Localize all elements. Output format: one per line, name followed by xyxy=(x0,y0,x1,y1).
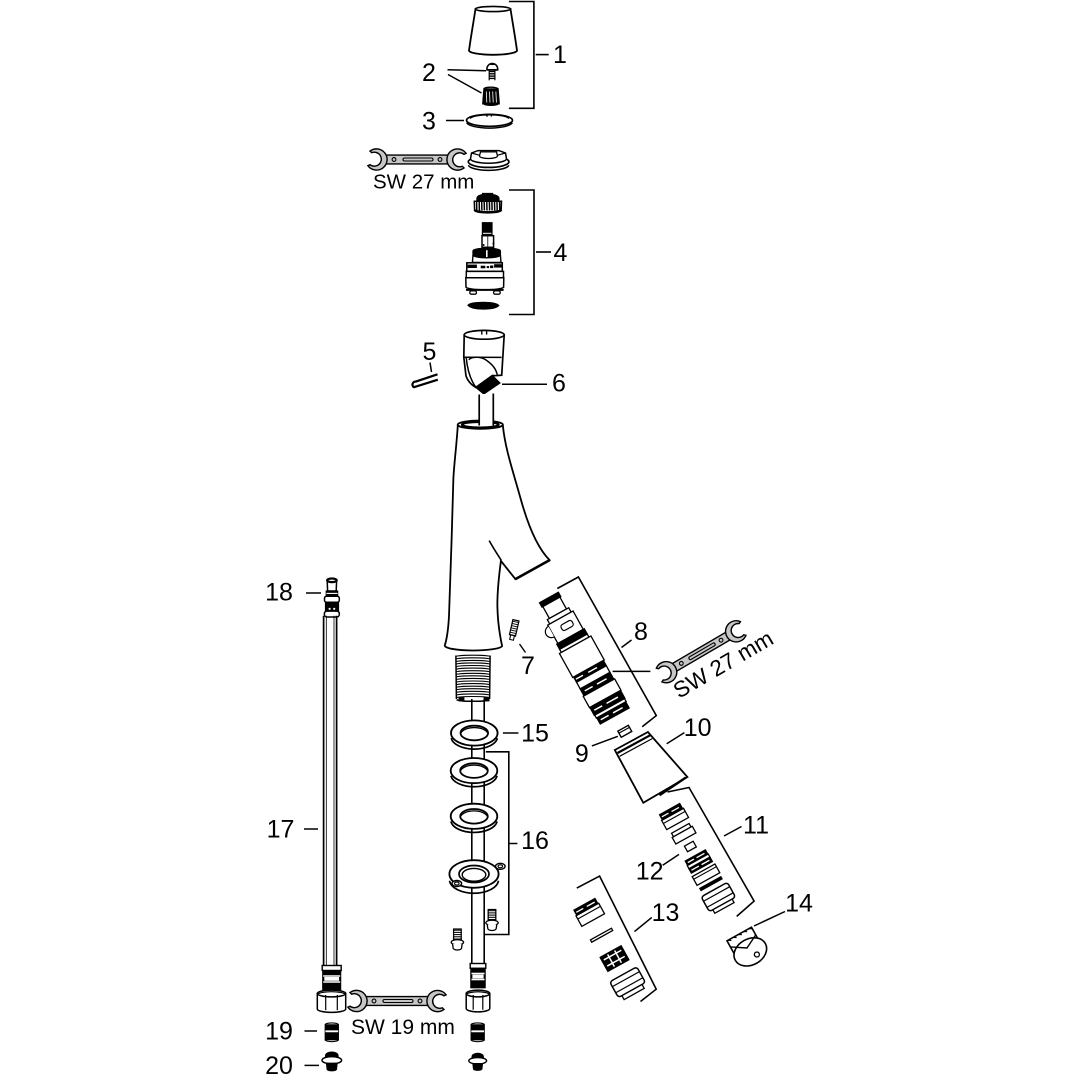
svg-text:20: 20 xyxy=(265,1052,293,1080)
svg-text:9: 9 xyxy=(575,740,589,768)
svg-text:16: 16 xyxy=(521,827,549,855)
svg-text:10: 10 xyxy=(684,714,712,742)
svg-text:3: 3 xyxy=(422,108,436,136)
svg-text:18: 18 xyxy=(265,579,293,607)
svg-text:17: 17 xyxy=(267,816,295,844)
svg-text:SW 27 mm: SW 27 mm xyxy=(373,171,474,194)
svg-text:SW 19 mm: SW 19 mm xyxy=(351,1016,455,1039)
svg-text:14: 14 xyxy=(785,890,813,918)
svg-text:4: 4 xyxy=(554,239,568,267)
svg-text:5: 5 xyxy=(423,338,437,366)
svg-text:19: 19 xyxy=(265,1018,293,1046)
svg-text:1: 1 xyxy=(553,41,567,69)
svg-text:8: 8 xyxy=(634,618,648,646)
svg-text:13: 13 xyxy=(652,899,680,927)
svg-text:12: 12 xyxy=(636,858,664,886)
svg-text:2: 2 xyxy=(422,59,436,87)
svg-text:15: 15 xyxy=(521,720,549,748)
svg-text:6: 6 xyxy=(552,370,566,398)
svg-text:11: 11 xyxy=(743,812,769,840)
svg-text:7: 7 xyxy=(521,652,535,680)
